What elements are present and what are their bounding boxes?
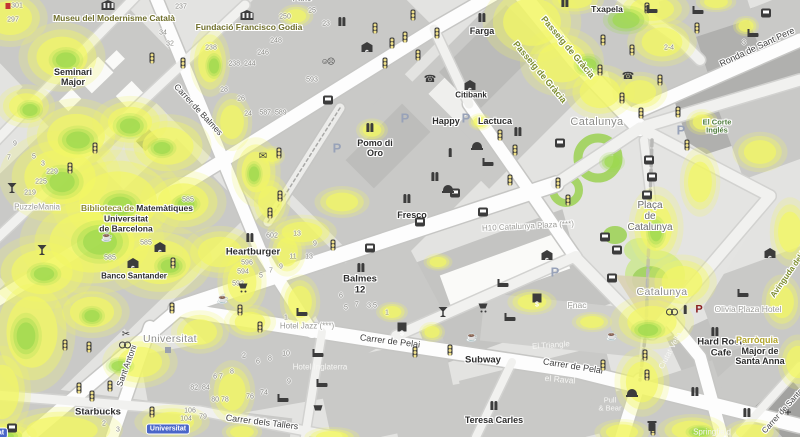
- traffic-light-icon: [411, 10, 416, 21]
- bus-stop-icon: [644, 156, 654, 165]
- housenumber: 80 78: [211, 397, 229, 404]
- housenumber: 237: [175, 4, 187, 11]
- housenumber: 2: [242, 353, 246, 360]
- traffic-light-icon: [258, 322, 263, 333]
- traffic-light-icon: [383, 58, 388, 69]
- label-museu-del-modernisme-català: Museu del Modernisme Català: [53, 14, 175, 24]
- person-icon: [448, 144, 453, 162]
- hotel-bed-icon: [483, 158, 494, 166]
- post-box-icon: ✉: [259, 152, 267, 162]
- housenumber: 592: [232, 281, 244, 288]
- bus-stop-icon: [607, 274, 617, 283]
- traffic-light-icon: [150, 53, 155, 64]
- housenumber: 7: [355, 302, 359, 309]
- traffic-light-icon: [268, 208, 273, 219]
- bank-icon: [765, 248, 776, 258]
- label-line: Pull: [599, 397, 622, 405]
- housenumber: 1: [385, 310, 389, 317]
- housenumber: 2-4: [664, 45, 674, 52]
- traffic-light-icon: [171, 258, 176, 269]
- housenumber: 602: [266, 233, 278, 240]
- label-line: 12: [343, 285, 377, 296]
- label-springfield: Springfield: [693, 429, 731, 437]
- housenumber: 79: [199, 414, 207, 421]
- label-txapela: Txapela: [591, 5, 623, 15]
- housenumber: 5: [32, 154, 36, 161]
- housenumber: 3: [742, 40, 746, 47]
- label-line: & Bear: [599, 405, 622, 413]
- traffic-light-icon: [556, 178, 561, 189]
- restroom-icon: [690, 383, 699, 401]
- bus-stop-icon: [450, 189, 460, 198]
- label-universitat: Universitatde Barcelona: [99, 214, 152, 233]
- housenumber: 297: [7, 17, 19, 24]
- bus-stop-icon: [478, 208, 488, 217]
- housenumber: 82, 84: [190, 385, 209, 392]
- hotel-bed-icon: [693, 6, 704, 14]
- bicycle-icon: [119, 342, 131, 349]
- theatre-icon: ☺☹: [321, 58, 334, 66]
- cocktail-bar-icon: [38, 245, 47, 255]
- traffic-light-icon: [566, 195, 571, 206]
- housenumber: 106: [184, 408, 196, 415]
- label-line: Catalunya: [627, 223, 672, 234]
- label-farga: Farga: [470, 26, 495, 36]
- traffic-light-icon: [651, 425, 656, 436]
- label-banco-santander: Banco Santander: [101, 273, 167, 282]
- housenumber: 238: [205, 45, 217, 52]
- bus-stop-icon: [612, 246, 622, 255]
- housenumber: 585: [140, 240, 152, 247]
- housenumber: 5: [344, 305, 348, 312]
- traffic-light-icon: [416, 50, 421, 61]
- label-catalunya: Catalunya: [570, 116, 623, 128]
- housenumber: 9: [287, 379, 291, 386]
- traffic-light-icon: [639, 108, 644, 119]
- label-pomo-di: Pomo diOro: [357, 138, 393, 158]
- label-balmes: Balmes12: [343, 274, 377, 295]
- hotel-bed-icon: [313, 349, 324, 357]
- housenumber: 9: [279, 264, 283, 271]
- cafe-icon: ☕: [217, 295, 229, 305]
- label-line: Universitat: [99, 214, 152, 224]
- label-line: Pomo di: [357, 138, 393, 148]
- bus-stop-icon: [323, 96, 333, 105]
- label-lactuca: Lactuca: [478, 116, 512, 126]
- bank-icon: [128, 258, 139, 268]
- label-teresa-carles: Teresa Carles: [465, 415, 523, 425]
- traffic-light-icon: [331, 240, 336, 251]
- housenumber: 6: [256, 359, 260, 366]
- label-line: Oro: [357, 148, 393, 158]
- parking-icon: P: [401, 112, 410, 125]
- housenumber: 594: [237, 269, 249, 276]
- shop-basket-icon: [314, 404, 323, 411]
- traffic-light-icon: [77, 383, 82, 394]
- label-line: Major: [54, 77, 92, 87]
- red-marker-icon: [6, 3, 11, 9]
- label-line: El Corte: [703, 119, 732, 127]
- bus-stop-icon: [761, 9, 771, 18]
- person-icon: [683, 301, 688, 319]
- housenumber: 26: [237, 96, 245, 103]
- housenumber: 7: [269, 268, 273, 275]
- label-universitat: Universitat: [143, 334, 197, 346]
- traffic-light-icon: [448, 345, 453, 356]
- supermarket-icon: [239, 284, 248, 293]
- traffic-light-icon: [403, 32, 408, 43]
- hotel-bed-icon: [505, 313, 516, 321]
- housenumber: 34: [159, 30, 167, 37]
- map-canvas[interactable]: SeminariMajorMuseu del Modernisme Català…: [0, 0, 800, 437]
- bus-stop-icon: [415, 218, 425, 227]
- label-starbucks: Starbucks: [75, 408, 121, 419]
- label-plaça: PlaçadeCatalunya: [627, 200, 672, 234]
- restaurant-icon: [472, 142, 482, 148]
- traffic-light-icon: [645, 3, 650, 14]
- label-parròquia: Parròquia: [736, 335, 778, 345]
- traffic-light-icon: [93, 143, 98, 154]
- label-avinguda-del-portal-de-l-àngel: Avinguda del Portal de l'Àngel: [769, 200, 800, 299]
- housenumber: 250: [279, 14, 291, 21]
- church-cross-icon: +: [784, 406, 791, 419]
- label-carrer-de-pelai: Carrer de Pelai: [542, 356, 603, 375]
- bus-stop-icon: [642, 191, 652, 200]
- housenumber: 3,5: [367, 303, 377, 310]
- label-el-raval: el Raval: [544, 374, 575, 386]
- traffic-light-icon: [90, 391, 95, 402]
- restroom-icon: [245, 229, 254, 247]
- metro-station-badge[interactable]: Universitat: [0, 428, 8, 437]
- label-fundació-francisco-godia: Fundació Francisco Godia: [196, 23, 303, 33]
- traffic-light-icon: [601, 360, 606, 371]
- hotel-bed-icon: [647, 5, 658, 13]
- housenumber: 6 7: [213, 374, 223, 381]
- label-ciutat-vella: Ciutat Vella: [658, 331, 685, 371]
- traffic-light-icon: [181, 58, 186, 69]
- museum-icon: [102, 0, 115, 10]
- label-line: Cafe: [697, 348, 745, 359]
- housenumber: 25: [308, 8, 316, 15]
- cafe-icon: ☕: [606, 332, 618, 342]
- housenumber: 593: [306, 77, 318, 84]
- traffic-light-icon: [277, 148, 282, 159]
- housenumber: 3: [41, 161, 45, 168]
- traffic-light-icon: [170, 303, 175, 314]
- housenumber: 11: [289, 254, 296, 261]
- label-hotel-jazz: Hotel Jazz (***): [280, 323, 334, 332]
- label-h10-catalunya-plaza: H10 Catalunya Plaza (***): [482, 220, 574, 234]
- atm-icon: [398, 323, 407, 332]
- housenumber: 3: [116, 427, 120, 434]
- label-line: Inglés: [703, 127, 732, 135]
- housenumber: 246: [257, 50, 269, 57]
- housenumber: 301: [11, 3, 23, 10]
- telephone-icon: ☎: [622, 72, 634, 82]
- hotel-bed-icon: [278, 394, 289, 402]
- atm-icon: [533, 294, 542, 303]
- housenumber: 28: [220, 87, 228, 94]
- housenumber: 7: [7, 155, 11, 162]
- traffic-light-icon: [508, 175, 513, 186]
- cafe-icon: ☕: [466, 333, 478, 343]
- restaurant-icon: [443, 185, 453, 191]
- cafe-icon: ☕: [101, 233, 113, 243]
- label-ronda-de-sant-pere: Ronda de Sant Pere: [718, 25, 796, 69]
- housenumber: 587, 589: [259, 110, 286, 117]
- label-heartburger: Heartburger: [226, 248, 280, 259]
- traffic-light-icon: [598, 65, 603, 76]
- traffic-light-icon: [150, 407, 155, 418]
- bicycle-icon: [666, 309, 678, 316]
- housenumber: 8: [230, 369, 234, 376]
- label-carrer-de-pelai: Carrer de Pelai: [359, 332, 420, 349]
- bus-stop-icon: [365, 244, 375, 253]
- restaurant-icon: [627, 389, 637, 395]
- housenumber: 6: [339, 293, 343, 300]
- housenumber: 219: [24, 190, 36, 197]
- label-puzzlemania: PuzzleMania: [14, 204, 60, 213]
- label-carrer-de-balmes: Carrer de Balmes: [172, 82, 224, 137]
- housenumber: 5: [259, 273, 263, 280]
- label-line: de: [627, 211, 672, 222]
- traffic-light-icon: [676, 107, 681, 118]
- bus-stop-icon: [600, 233, 610, 242]
- traffic-light-icon: [390, 38, 395, 49]
- housenumber: 23: [322, 21, 330, 28]
- label-line: Balmes: [343, 274, 377, 285]
- label-catalunya: Catalunya: [637, 287, 688, 299]
- restroom-icon: [430, 168, 439, 186]
- restroom-icon: [356, 259, 365, 277]
- label-fnac: Fnac: [568, 301, 587, 311]
- restroom-icon: [365, 119, 374, 137]
- traffic-light-icon: [68, 163, 73, 174]
- label-pans: Pans: [292, 0, 311, 3]
- parking-icon: P: [551, 266, 560, 279]
- traffic-light-icon: [620, 93, 625, 104]
- label-biblioteca-de: Biblioteca de Matemàtiques: [81, 204, 193, 214]
- parking-icon: P: [333, 142, 342, 155]
- restroom-icon: [710, 323, 719, 341]
- label-line: Plaça: [627, 200, 672, 211]
- traffic-light-icon: [513, 145, 518, 156]
- traffic-light-icon: [373, 23, 378, 34]
- label-carrer-de-santa-anna: Carrer de Santa Anna: [761, 372, 800, 436]
- cocktail-bar-icon: [439, 307, 448, 317]
- bus-stop-icon: [7, 424, 17, 433]
- map-overlay-layer: SeminariMajorMuseu del Modernisme Català…: [0, 0, 800, 437]
- metro-entrance-icon: [165, 347, 171, 353]
- hotel-bed-icon: [317, 379, 328, 387]
- traffic-light-icon: [108, 381, 113, 392]
- label-el-corte: El CorteInglés: [703, 119, 732, 136]
- private-parking-icon: P: [695, 305, 702, 316]
- traffic-light-icon: [695, 23, 700, 34]
- metro-station-badge[interactable]: Universitat: [146, 424, 190, 435]
- label-line: Major de: [735, 346, 784, 356]
- label-line: Seminari: [54, 67, 92, 77]
- label-olivia-plaza-hotel: Olivia Plaza Hotel: [714, 305, 781, 315]
- traffic-light-icon: [645, 370, 650, 381]
- label-citibank: Citibank: [455, 92, 487, 101]
- housenumber: 8: [268, 356, 272, 363]
- hotel-bed-icon: [748, 29, 759, 37]
- label-happy: Happy: [432, 116, 460, 126]
- traffic-light-icon: [87, 342, 92, 353]
- housenumber: 10: [282, 351, 290, 358]
- housenumber: 13: [305, 254, 313, 261]
- traffic-light-icon: [63, 340, 68, 351]
- restroom-icon: [513, 123, 522, 141]
- bank-icon: [155, 242, 166, 252]
- label-sant-antoni: Sant Antoni: [115, 344, 139, 388]
- housenumber: 596: [241, 260, 253, 267]
- label-passeig-de-gràcia: Passeig de Gràcia: [539, 14, 597, 80]
- restroom-icon: [337, 13, 346, 31]
- traffic-light-icon: [435, 28, 440, 39]
- hairdresser-icon: ✂: [122, 330, 130, 340]
- housenumber: 76: [246, 394, 254, 401]
- bank-icon: [465, 80, 476, 90]
- bus-stop-icon: [555, 139, 565, 148]
- label-line: Hard Rock: [697, 337, 745, 348]
- traffic-light-icon: [601, 35, 606, 46]
- label-major-de: Major deSanta Anna: [735, 346, 784, 366]
- housenumber: 225: [35, 179, 47, 186]
- housenumber: 2: [102, 421, 106, 428]
- traffic-light-icon: [658, 75, 663, 86]
- label-carrer-dels-tallers: Carrer dels Tallers: [225, 413, 299, 432]
- traffic-light-icon: [278, 191, 283, 202]
- hotel-bed-icon: [297, 308, 308, 316]
- housenumber: 238, 244: [228, 61, 255, 68]
- label-line: Santa Anna: [735, 356, 784, 366]
- housenumber: 229: [46, 169, 58, 176]
- restroom-icon: [560, 0, 569, 12]
- label-hard-rock: Hard RockCafe: [697, 337, 745, 358]
- housenumber: 9: [13, 141, 17, 148]
- restroom-icon: [477, 9, 486, 27]
- bank-icon: [542, 250, 553, 260]
- label-pull: Pull& Bear: [599, 397, 622, 414]
- housenumber: 104: [180, 416, 192, 423]
- label-subway: Subway: [465, 356, 501, 367]
- label-fresco: Fresco: [397, 210, 427, 220]
- housenumber: 1: [284, 315, 288, 322]
- parking-icon: P: [677, 124, 686, 137]
- hotel-bed-icon: [738, 289, 749, 297]
- traffic-light-icon: [498, 130, 503, 141]
- label-passeig-de-gràcia: Passeig de Gràcia: [511, 39, 569, 105]
- telephone-icon: ☎: [424, 75, 436, 85]
- traffic-light-icon: [685, 140, 690, 151]
- traffic-light-icon: [630, 45, 635, 56]
- label-part: Matemàtiques: [136, 203, 193, 213]
- label-line: de Barcelona: [99, 224, 152, 234]
- supermarket-icon: [479, 304, 488, 313]
- housenumber: 585: [182, 197, 194, 204]
- housenumber: 32: [166, 41, 174, 48]
- housenumber: 24: [244, 111, 252, 118]
- parking-icon: P: [462, 112, 471, 125]
- housenumber: 9: [313, 241, 317, 248]
- restroom-icon: [402, 190, 411, 208]
- housenumber: 74: [260, 390, 268, 397]
- restroom-icon: [489, 397, 498, 415]
- housenumber: 13: [293, 231, 301, 238]
- housenumber: 585: [104, 255, 116, 262]
- label-hotel-inglaterra: Hotel Inglaterra: [293, 364, 348, 373]
- label-el-triangle: El Triangle: [532, 340, 570, 352]
- museum-icon: [241, 10, 254, 20]
- traffic-light-icon: [238, 305, 243, 316]
- housenumber: 248: [270, 38, 282, 45]
- label-seminari: SeminariMajor: [54, 67, 92, 87]
- traffic-light-icon: [413, 347, 418, 358]
- label-part: Biblioteca de: [81, 203, 136, 213]
- waste-basket-icon: [649, 423, 656, 431]
- restroom-icon: [742, 404, 751, 422]
- cocktail-bar-icon: [8, 183, 17, 193]
- bank-icon: [362, 42, 373, 52]
- traffic-light-icon: [643, 350, 648, 361]
- hotel-bed-icon: [498, 279, 509, 287]
- bus-stop-icon: [647, 173, 657, 182]
